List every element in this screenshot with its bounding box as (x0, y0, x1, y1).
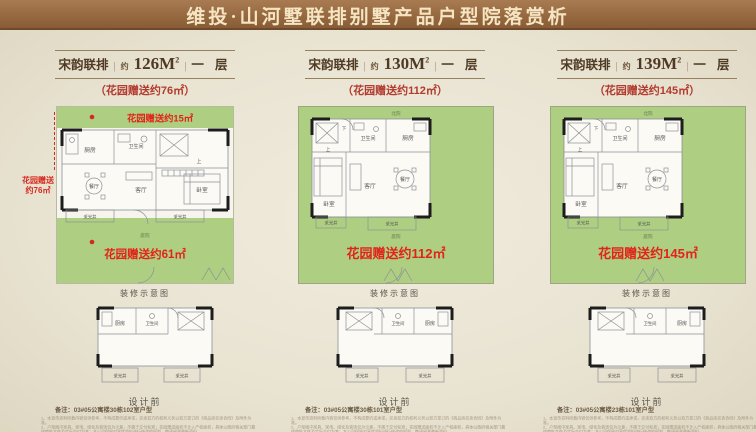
series-name: 宋韵联排 (560, 54, 610, 73)
unit-column-130: 宋韵联排 | 约 130M2 | 一 层 （花园赠送约112㎡） 北院 (285, 38, 505, 432)
poster: 维投·山河墅联排别墅产品户型院落赏析 宋韵联排 | 约 126M2 | 一 层 … (0, 0, 756, 432)
garden-main-label: 花园赠送约61㎡ (104, 247, 186, 261)
room-label-dining: 餐厅 (89, 183, 99, 190)
garden-main-label: 花园赠送约112㎡ (347, 246, 446, 261)
room-label-kitchen: 厨房 (654, 134, 666, 142)
stairs-up-label: 上 (578, 146, 583, 152)
unit-area: 130M2 (384, 54, 430, 74)
disclaimer: 1、本宣传资料所载内容仅供参考，不构成要约或承诺，买卖双方的权利义务以双方签订的… (41, 416, 256, 432)
yard-label: 庭院 (643, 233, 653, 240)
page-title: 维投·山河墅联排别墅产品户型院落赏析 (186, 2, 569, 29)
unit-note: 备注：03#05公寓楼30栋102室户型 (55, 406, 250, 415)
separator: | (434, 60, 436, 72)
series-name: 宋韵联排 (308, 54, 358, 73)
north-yard-label: 北院 (643, 110, 653, 117)
room-label-bath: 卫生间 (146, 320, 159, 327)
room-label-bedroom: 卧室 (323, 200, 335, 208)
room-label-lightwell: 采光井 (386, 221, 400, 228)
floor-label: 一 层 (191, 54, 231, 73)
garden-total-note: （花园赠送约145㎡） (537, 82, 756, 98)
callout-dot (90, 115, 95, 120)
room-label-lightwell: 采光井 (671, 373, 685, 380)
room-label-kitchen: 厨房 (677, 320, 687, 327)
floor-label: 一 层 (693, 54, 733, 73)
room-label-lightwell: 采光井 (638, 221, 652, 228)
floorplan-decorated-130: 北院 下 上 卫生间 (298, 106, 494, 284)
room-label-lightwell: 采光井 (608, 373, 622, 380)
disclaimer: 1、本宣传资料所载内容仅供参考，不构成要约或承诺，买卖双方的权利义务以双方签订的… (291, 416, 506, 432)
room-label-bath: 卫生间 (360, 135, 375, 142)
unit-header: 宋韵联排 | 约 130M2 | 一 层 (305, 50, 485, 79)
floorplan-predesign-130: 卫生间 厨房 采光井 采光井 (330, 300, 460, 394)
stairs-up-label: 上 (196, 158, 201, 165)
room-label-lightwell: 采光井 (419, 373, 433, 380)
room-label-kitchen: 厨房 (84, 146, 96, 154)
separator: | (184, 60, 186, 72)
callout-dot (90, 240, 95, 245)
floorplan-predesign-126: 厨房 卫生间 采光井 采光井 (90, 300, 220, 394)
room-label-living: 客厅 (135, 186, 147, 194)
caption-decor-schematic: 装修示意图 (537, 288, 756, 299)
room-label-bath: 卫生间 (392, 320, 405, 327)
unit-note: 备注：03#05公寓楼30栋101室户型 (305, 406, 500, 415)
garden-callout-line (54, 112, 55, 170)
garden-total-note: （花园赠送约76㎡） (35, 82, 255, 98)
room-label-lightwell: 采光井 (356, 373, 370, 380)
unit-area: 139M2 (636, 54, 682, 74)
room-label-living: 客厅 (616, 182, 628, 190)
caption-decor-schematic: 装修示意图 (35, 288, 255, 299)
separator: | (113, 60, 115, 72)
garden-total-note: （花园赠送约112㎡） (285, 82, 505, 98)
room-label-kitchen: 厨房 (402, 134, 414, 142)
unit-column-126: 宋韵联排 | 约 126M2 | 一 层 （花园赠送约76㎡） (35, 38, 255, 432)
room-label-bedroom: 卧室 (575, 200, 587, 208)
title-banner: 维投·山河墅联排别墅产品户型院落赏析 (0, 0, 756, 30)
unit-header: 宋韵联排 | 约 126M2 | 一 层 (55, 50, 235, 79)
garden-top-label: 花园赠送约15㎡ (127, 113, 194, 124)
unit-area: 126M2 (134, 54, 180, 74)
yard-label: 庭院 (391, 233, 401, 240)
room-label-lightwell: 采光井 (325, 220, 339, 227)
room-label-bath: 卫生间 (128, 143, 143, 150)
separator: | (686, 60, 688, 72)
unit-column-139: 宋韵联排 | 约 139M2 | 一 层 （花园赠送约145㎡） 北院 (537, 38, 756, 432)
garden-side-note: 花园赠送 约76㎡ (18, 176, 58, 196)
floorplan-decorated-139: 北院 下 上 卫生间 (550, 106, 746, 284)
north-yard-label: 北院 (391, 110, 401, 117)
separator: | (615, 60, 617, 72)
approx-mark: 约 (121, 61, 129, 72)
room-label-bath: 卫生间 (612, 135, 627, 142)
room-label-lightwell: 采光井 (174, 214, 188, 221)
room-label-bedroom: 卧室 (196, 186, 208, 194)
garden-main-label: 花园赠送约145㎡ (598, 246, 698, 261)
floorplan-predesign-139: 卫生间 厨房 采光井 采光井 (582, 300, 712, 394)
floorplan-decorated-126: 花园赠送约15㎡ 厨房 卫生间 上 餐厅 客厅 卧室 采光井 采光井 庭院 花园… (56, 106, 234, 284)
floor-label: 一 层 (441, 54, 481, 73)
room-label-lightwell: 采光井 (577, 220, 591, 227)
stairs-up-label: 上 (326, 146, 331, 152)
disclaimer: 1、本宣传资料所载内容仅供参考，不构成要约或承诺，买卖双方的权利义务以双方签订的… (543, 416, 756, 432)
room-label-dining: 餐厅 (400, 176, 410, 183)
room-label-living: 客厅 (364, 182, 376, 190)
separator: | (363, 60, 365, 72)
yard-label: 庭院 (140, 232, 150, 239)
caption-decor-schematic: 装修示意图 (285, 288, 505, 299)
room-label-bath: 卫生间 (644, 320, 657, 327)
room-label-lightwell: 采光井 (114, 373, 128, 380)
approx-mark: 约 (371, 61, 379, 72)
unit-header: 宋韵联排 | 约 139M2 | 一 层 (557, 50, 737, 79)
room-label-kitchen: 厨房 (115, 320, 125, 327)
room-label-lightwell: 采光井 (176, 373, 190, 380)
series-name: 宋韵联排 (58, 54, 108, 73)
room-label-kitchen: 厨房 (425, 320, 435, 327)
unit-note: 备注：03#05公寓楼23栋101室户型 (557, 406, 752, 415)
room-label-lightwell: 采光井 (84, 214, 98, 221)
approx-mark: 约 (623, 61, 631, 72)
room-label-dining: 餐厅 (652, 176, 662, 183)
